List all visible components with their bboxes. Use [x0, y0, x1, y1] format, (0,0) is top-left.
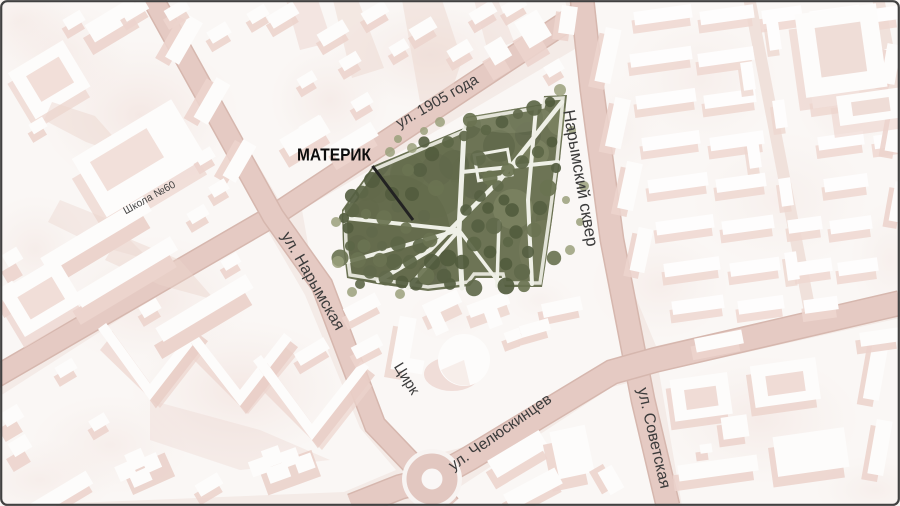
svg-text:МАТЕРИК: МАТЕРИК: [297, 145, 371, 165]
